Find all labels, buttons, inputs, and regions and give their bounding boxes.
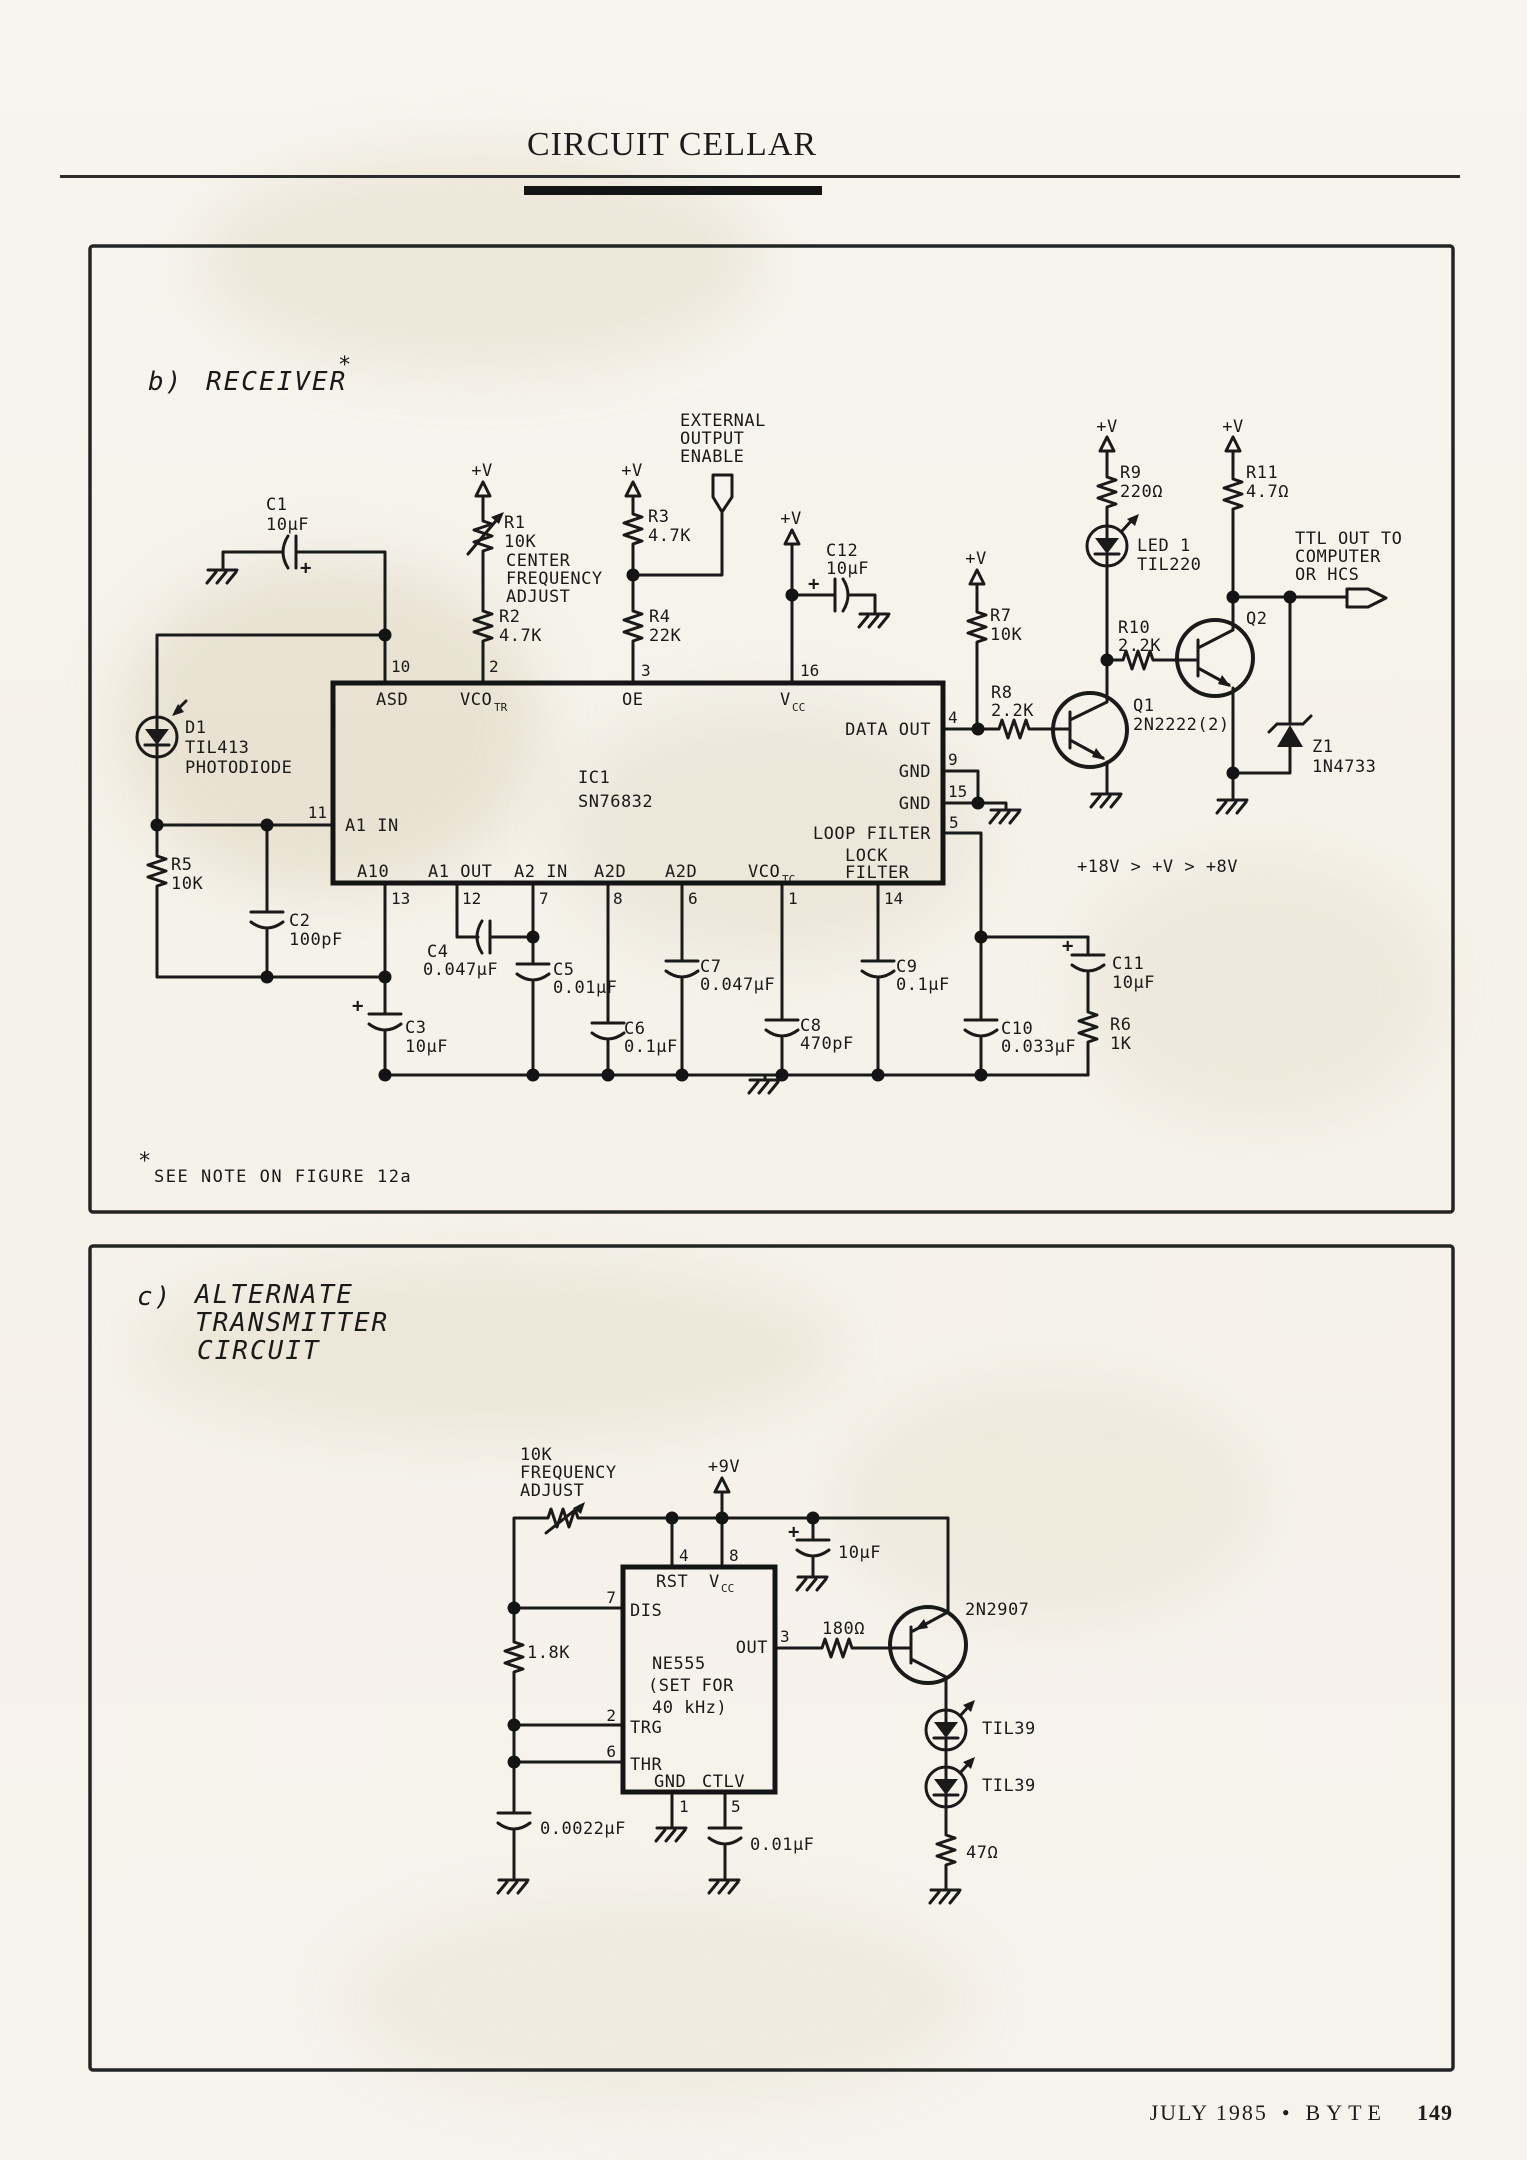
- capacitor-c5: [517, 964, 549, 980]
- r11-ref: R11: [1246, 463, 1278, 483]
- led1-ref: LED 1: [1137, 536, 1191, 556]
- resistor-180: [818, 1639, 854, 1657]
- c12-ref: C12: [826, 541, 858, 561]
- capacitor-c7: [666, 961, 698, 977]
- pin-15: 15: [948, 782, 967, 801]
- c9-ref: C9: [896, 957, 917, 977]
- footer-bullet: •: [1282, 2100, 1292, 2126]
- c4-value: 0.047μF: [423, 960, 498, 980]
- r6-ref: R6: [1110, 1015, 1131, 1035]
- q1-ground: [1091, 794, 1121, 807]
- pin-4: 4: [948, 708, 958, 727]
- c5-value: 0.01μF: [553, 978, 617, 998]
- ic1-pin-vcc-sub: CC: [792, 701, 805, 714]
- pin-7: 7: [539, 889, 549, 908]
- ne555-pin-rst: RST: [656, 1572, 688, 1592]
- transmitter-title-1: ALTERNATE: [193, 1280, 354, 1310]
- r5-ref: R5: [171, 855, 192, 875]
- transmitter-title-3: CIRCUIT: [197, 1336, 321, 1366]
- c7-value: 0.047μF: [700, 975, 775, 995]
- r180-value: 180Ω: [822, 1619, 865, 1639]
- c8-ref: C8: [800, 1016, 821, 1036]
- pin-6-tx: 6: [606, 1742, 616, 1761]
- pin-2-tx: 2: [606, 1706, 616, 1725]
- r18k-value: 1.8K: [527, 1643, 570, 1663]
- c2-ref: C2: [289, 911, 310, 931]
- ic1-pin-vcotr: VCO: [460, 690, 492, 710]
- q-2n2907-part: 2N2907: [965, 1600, 1029, 1620]
- supply-9v: [715, 1478, 729, 1492]
- ic1-pin-a2in: A2 IN: [514, 862, 568, 882]
- pin-8-tx: 8: [729, 1546, 739, 1565]
- note-star: *: [138, 1149, 151, 1174]
- ne555-chip: RST V CC DIS OUT TRG THR GND CTLV NE555 …: [606, 1546, 789, 1816]
- resistor-r5: [148, 852, 166, 888]
- pin-13: 13: [391, 889, 410, 908]
- resistor-r9: [1098, 437, 1116, 509]
- ic1-part: SN76832: [578, 792, 653, 812]
- ttl-label-3: OR HCS: [1295, 565, 1359, 585]
- receiver-title-prefix: b): [148, 367, 183, 397]
- led-til39-1-part: TIL39: [982, 1719, 1036, 1739]
- capacitor-c9: [862, 961, 894, 977]
- c11-value: 10μF: [1112, 973, 1155, 993]
- ne555-pin-out: OUT: [736, 1638, 768, 1658]
- footer-issue: JULY 1985: [1150, 2100, 1268, 2126]
- ttl-output-arrow: [1347, 589, 1386, 607]
- ne555-note-2: 40 kHz): [652, 1698, 727, 1718]
- c12-value: 10μF: [826, 559, 869, 579]
- r3-supply: +V: [621, 461, 642, 481]
- ic1-pin-a10: A10: [357, 862, 389, 882]
- ne555-pin-vcc-sub: CC: [721, 1582, 734, 1595]
- led1: [1087, 514, 1139, 566]
- c9-value: 0.1μF: [896, 975, 950, 995]
- c12-supply: +V: [780, 509, 801, 529]
- enable-label-1: EXTERNAL: [680, 411, 766, 431]
- resistor-r3-r4: [624, 475, 732, 643]
- transmitter-panel-border: [90, 1246, 1453, 2070]
- d1-part: TIL413: [185, 738, 249, 758]
- c10-value: 0.033μF: [1001, 1037, 1076, 1057]
- ic1-pin-a1out: A1 OUT: [428, 862, 492, 882]
- c1-polarity: +: [300, 557, 311, 579]
- ic1-pin-vcotc-sub: TC: [782, 873, 795, 886]
- ic1-pin-oe: OE: [622, 690, 643, 710]
- led-til39-2-part: TIL39: [982, 1776, 1036, 1796]
- ne555-ref: NE555: [652, 1654, 706, 1674]
- pin-10: 10: [391, 657, 410, 676]
- led-til39-2: [926, 1757, 975, 1807]
- d1-note: PHOTODIODE: [185, 758, 292, 778]
- receiver-title: RECEIVER: [206, 367, 347, 397]
- capacitor-c10: [965, 1020, 997, 1036]
- c6-ref: C6: [624, 1019, 645, 1039]
- c5-ref: C5: [553, 960, 574, 980]
- c001-value: 0.01μF: [750, 1835, 814, 1855]
- ic1-pin-asd: ASD: [376, 690, 408, 710]
- footer-magazine: BYTE: [1306, 2100, 1387, 2126]
- q1-part: 2N2222(2): [1133, 715, 1230, 735]
- voltage-note: +18V > +V > +8V: [1077, 857, 1238, 877]
- resistor-18k: [505, 1638, 523, 1674]
- ic1-pin-a2d8: A2D: [594, 862, 626, 882]
- c11-polarity: +: [1062, 935, 1073, 957]
- r9-ref: R9: [1120, 463, 1141, 483]
- ic1-pin-lockfilter-2: FILTER: [845, 863, 910, 883]
- capacitor-c2: [251, 912, 283, 928]
- pin-3: 3: [641, 661, 651, 680]
- capacitor-c6: [592, 1023, 624, 1039]
- pin-9: 9: [948, 750, 958, 769]
- pin-14: 14: [884, 889, 903, 908]
- enable-label-3: ENABLE: [680, 447, 744, 467]
- r9-value: 220Ω: [1120, 482, 1163, 502]
- r11-value: 4.7Ω: [1246, 482, 1289, 502]
- c10uf-value: 10μF: [838, 1543, 881, 1563]
- ic1-pin-dataout: DATA OUT: [845, 720, 931, 740]
- transmitter-title-2: TRANSMITTER: [195, 1308, 389, 1338]
- r1-value: 10K: [504, 532, 536, 552]
- r2-ref: R2: [499, 607, 520, 627]
- c10-ref: C10: [1001, 1019, 1033, 1039]
- footer-page-number: 149: [1417, 2100, 1453, 2126]
- r7-ref: R7: [990, 606, 1011, 626]
- pin-5: 5: [949, 813, 959, 832]
- ic1-pin-vcotc: VCO: [748, 862, 780, 882]
- r8-value: 2.2K: [991, 701, 1034, 721]
- pin-11: 11: [308, 803, 327, 822]
- pin-16: 16: [800, 661, 819, 680]
- q2-ref: Q2: [1246, 609, 1267, 629]
- c3-polarity: +: [352, 995, 363, 1017]
- r6-value: 1K: [1110, 1034, 1132, 1054]
- ic1-pin-a2d6: A2D: [665, 862, 697, 882]
- transistor-2n2907: [890, 1607, 966, 1683]
- r9-supply: +V: [1096, 417, 1117, 437]
- rail-ground: [749, 1080, 779, 1093]
- pot-value: 10K: [520, 1445, 552, 1465]
- pin-7-tx: 7: [606, 1588, 616, 1607]
- ic1-pin-gnd9: GND: [899, 762, 931, 782]
- ne555-gnd-ground: [656, 1828, 686, 1841]
- gnd15-ground: [990, 810, 1020, 823]
- r1-supply: +V: [471, 461, 492, 481]
- transmitter-panel: c) ALTERNATE TRANSMITTER CIRCUIT 10K FRE…: [90, 1246, 1453, 2070]
- r1-note-3: ADJUST: [506, 587, 570, 607]
- d1-ref: D1: [185, 718, 206, 738]
- c2-value: 100pF: [289, 930, 343, 950]
- r1-note-2: FREQUENCY: [506, 569, 603, 589]
- ne555-pin-trg: TRG: [630, 1718, 662, 1738]
- magazine-page: CIRCUIT CELLAR b) RECEIVER *: [0, 0, 1527, 2160]
- c3-value: 10μF: [405, 1037, 448, 1057]
- resistor-r11: [1224, 437, 1242, 511]
- r3-ref: R3: [648, 507, 669, 527]
- c11-ref: C11: [1112, 954, 1144, 974]
- pin-4-tx: 4: [679, 1546, 689, 1565]
- ic1-pin-vcotr-sub: TR: [494, 701, 508, 714]
- ne555-pin-dis: DIS: [630, 1601, 662, 1621]
- ic1-pin-a1in: A1 IN: [345, 816, 399, 836]
- pin-2: 2: [489, 657, 499, 676]
- c4-ref: C4: [427, 942, 448, 962]
- wire-input-network: [157, 552, 385, 1075]
- ne555-pin-gnd: GND: [654, 1772, 686, 1792]
- led-til39-1: [926, 1700, 975, 1750]
- schematic-figure: b) RECEIVER * IC1 SN76832 ASD VCO TR OE …: [0, 0, 1527, 2160]
- page-footer: JULY 1985 • BYTE 149: [1150, 2100, 1453, 2126]
- ic1-pin-loopfilter: LOOP FILTER: [813, 824, 931, 844]
- transistor-q2: [1177, 597, 1253, 696]
- c3-ref: C3: [405, 1018, 426, 1038]
- pin-6: 6: [688, 889, 698, 908]
- ic1-pin-vcc: V: [780, 690, 791, 710]
- r7-value: 10K: [990, 625, 1022, 645]
- c7-ref: C7: [700, 957, 721, 977]
- r8-ref: R8: [991, 683, 1012, 703]
- transmitter-title-prefix: c): [137, 1282, 172, 1312]
- frequency-pot: [544, 1502, 585, 1533]
- r4-value: 22K: [649, 626, 681, 646]
- photodiode-d1: [137, 701, 186, 757]
- r7-supply: +V: [965, 549, 986, 569]
- capacitor-c1: [207, 536, 296, 583]
- r11-supply: +V: [1222, 417, 1243, 437]
- z1-part: 1N4733: [1312, 757, 1376, 777]
- c8-value: 470pF: [800, 1034, 854, 1054]
- q1-ref: Q1: [1133, 696, 1154, 716]
- pin-8: 8: [613, 889, 623, 908]
- supply-9v-label: +9V: [708, 1457, 740, 1477]
- ic1-ref: IC1: [578, 768, 610, 788]
- pot-note-1: FREQUENCY: [520, 1463, 617, 1483]
- receiver-title-star: *: [338, 353, 351, 378]
- pin-3-tx: 3: [780, 1627, 790, 1646]
- receiver-panel: b) RECEIVER * IC1 SN76832 ASD VCO TR OE …: [90, 246, 1453, 1212]
- r4-ref: R4: [649, 607, 670, 627]
- led1-part: TIL220: [1137, 555, 1201, 575]
- ic1-pin-gnd15: GND: [899, 794, 931, 814]
- r3-value: 4.7K: [648, 526, 691, 546]
- c12-polarity: +: [808, 573, 819, 595]
- ne555-pin-vcc: V: [709, 1572, 720, 1592]
- pin-1-tx: 1: [679, 1797, 689, 1816]
- enable-connector: [713, 475, 732, 512]
- z1-ref: Z1: [1312, 737, 1333, 757]
- r1-note-1: CENTER: [506, 551, 571, 571]
- ne555-note-1: (SET FOR: [648, 1676, 734, 1696]
- pin-12: 12: [462, 889, 481, 908]
- resistor-47: [937, 1831, 955, 1867]
- resistor-r2: [474, 607, 492, 643]
- pin-5-tx: 5: [731, 1797, 741, 1816]
- r10-value: 2.2K: [1118, 636, 1161, 656]
- r5-value: 10K: [171, 874, 203, 894]
- receiver-footnote: SEE NOTE ON FIGURE 12a: [154, 1167, 412, 1187]
- c6-value: 0.1μF: [624, 1037, 678, 1057]
- r10-ref: R10: [1118, 618, 1150, 638]
- resistor-r6: [1079, 1008, 1097, 1044]
- ne555-pin-ctlv: CTLV: [702, 1772, 745, 1792]
- r2-value: 4.7K: [499, 626, 542, 646]
- enable-label-2: OUTPUT: [680, 429, 744, 449]
- r47-value: 47Ω: [966, 1843, 998, 1863]
- ttl-label-2: COMPUTER: [1295, 547, 1381, 567]
- q2-ground: [1217, 800, 1247, 813]
- c10uf-polarity: +: [788, 1521, 799, 1543]
- capacitor-c8: [766, 1020, 798, 1036]
- ic1-chip: IC1 SN76832 ASD VCO TR OE V CC A1 IN DAT…: [308, 657, 968, 908]
- ttl-label-1: TTL OUT TO: [1295, 529, 1402, 549]
- c1-value: 10μF: [266, 515, 309, 535]
- pin-1: 1: [788, 889, 798, 908]
- c1-ref: C1: [266, 495, 287, 515]
- r47-ground: [930, 1890, 960, 1903]
- capacitor-c11: [1072, 955, 1104, 971]
- capacitor-c3: [369, 1014, 401, 1030]
- c0022-value: 0.0022μF: [540, 1819, 626, 1839]
- r1-ref: R1: [504, 513, 525, 533]
- pot-note-2: ADJUST: [520, 1481, 584, 1501]
